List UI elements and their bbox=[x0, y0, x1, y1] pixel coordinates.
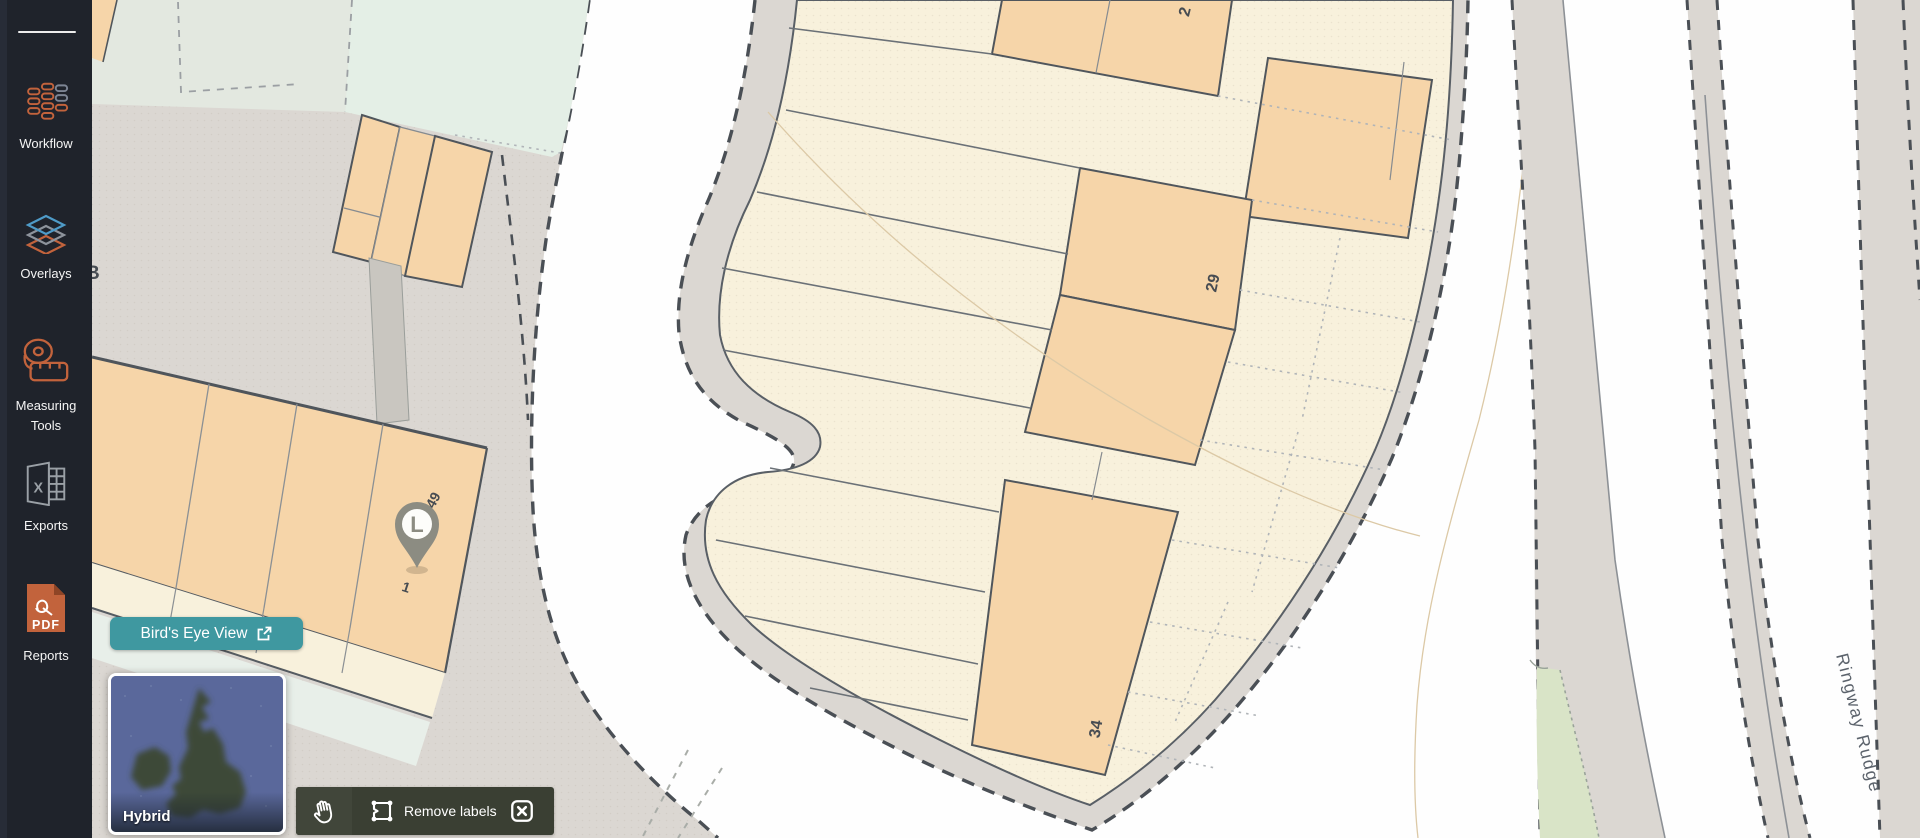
close-icon bbox=[509, 798, 535, 824]
app-root: { "sidebar": { "items": [ {"label": "Wor… bbox=[0, 0, 1920, 838]
exports-icon: X bbox=[21, 460, 71, 506]
sidebar-item-label: Exports bbox=[0, 516, 92, 536]
svg-text:PDF: PDF bbox=[32, 618, 60, 632]
label-plot-34: 34 bbox=[1087, 719, 1107, 740]
sidebar-item-workflow[interactable]: Workflow bbox=[0, 76, 92, 154]
overlays-icon bbox=[20, 210, 72, 254]
label-plot-29: 29 bbox=[1203, 273, 1223, 294]
sidebar-item-label: Workflow bbox=[0, 134, 92, 154]
basemap-toggle-label: Hybrid bbox=[123, 808, 171, 825]
measuring-tools-icon bbox=[19, 334, 73, 386]
sidebar-item-label: Overlays bbox=[0, 264, 92, 284]
hand-pan-icon bbox=[308, 795, 340, 827]
map-canvas[interactable]: B 2 29 34 49 1 Ringway Rudge L bbox=[0, 0, 1920, 838]
polygon-select-button[interactable] bbox=[370, 799, 394, 823]
reports-icon: PDF bbox=[21, 580, 71, 636]
sidebar-item-label: Reports bbox=[0, 646, 92, 666]
sidebar-item-measuring-tools[interactable]: Measuring Tools bbox=[0, 334, 92, 435]
close-toolbar-button[interactable] bbox=[509, 798, 535, 824]
remove-labels-label: Remove labels bbox=[404, 803, 497, 819]
sidebar-item-overlays[interactable]: Overlays bbox=[0, 210, 92, 284]
external-link-icon bbox=[256, 626, 272, 642]
basemap-toggle-thumbnail[interactable]: Hybrid bbox=[108, 673, 286, 835]
birds-eye-view-label: Bird's Eye View bbox=[141, 625, 248, 643]
svg-text:X: X bbox=[34, 481, 44, 497]
pan-tool-button[interactable] bbox=[296, 787, 352, 835]
sidebar-item-reports[interactable]: PDF Reports bbox=[0, 580, 92, 666]
sidebar: Workflow Overlays Measuring Tools bbox=[0, 0, 92, 838]
pin-letter: L bbox=[410, 512, 423, 537]
workflow-icon bbox=[20, 76, 72, 124]
birds-eye-view-button[interactable]: Bird's Eye View bbox=[110, 617, 303, 650]
map-toolbar: Remove labels bbox=[296, 787, 554, 835]
sidebar-item-label: Measuring Tools bbox=[8, 396, 84, 435]
sidebar-menu-divider bbox=[18, 31, 76, 33]
polygon-select-icon bbox=[370, 799, 394, 823]
sidebar-item-exports[interactable]: X Exports bbox=[0, 460, 92, 536]
